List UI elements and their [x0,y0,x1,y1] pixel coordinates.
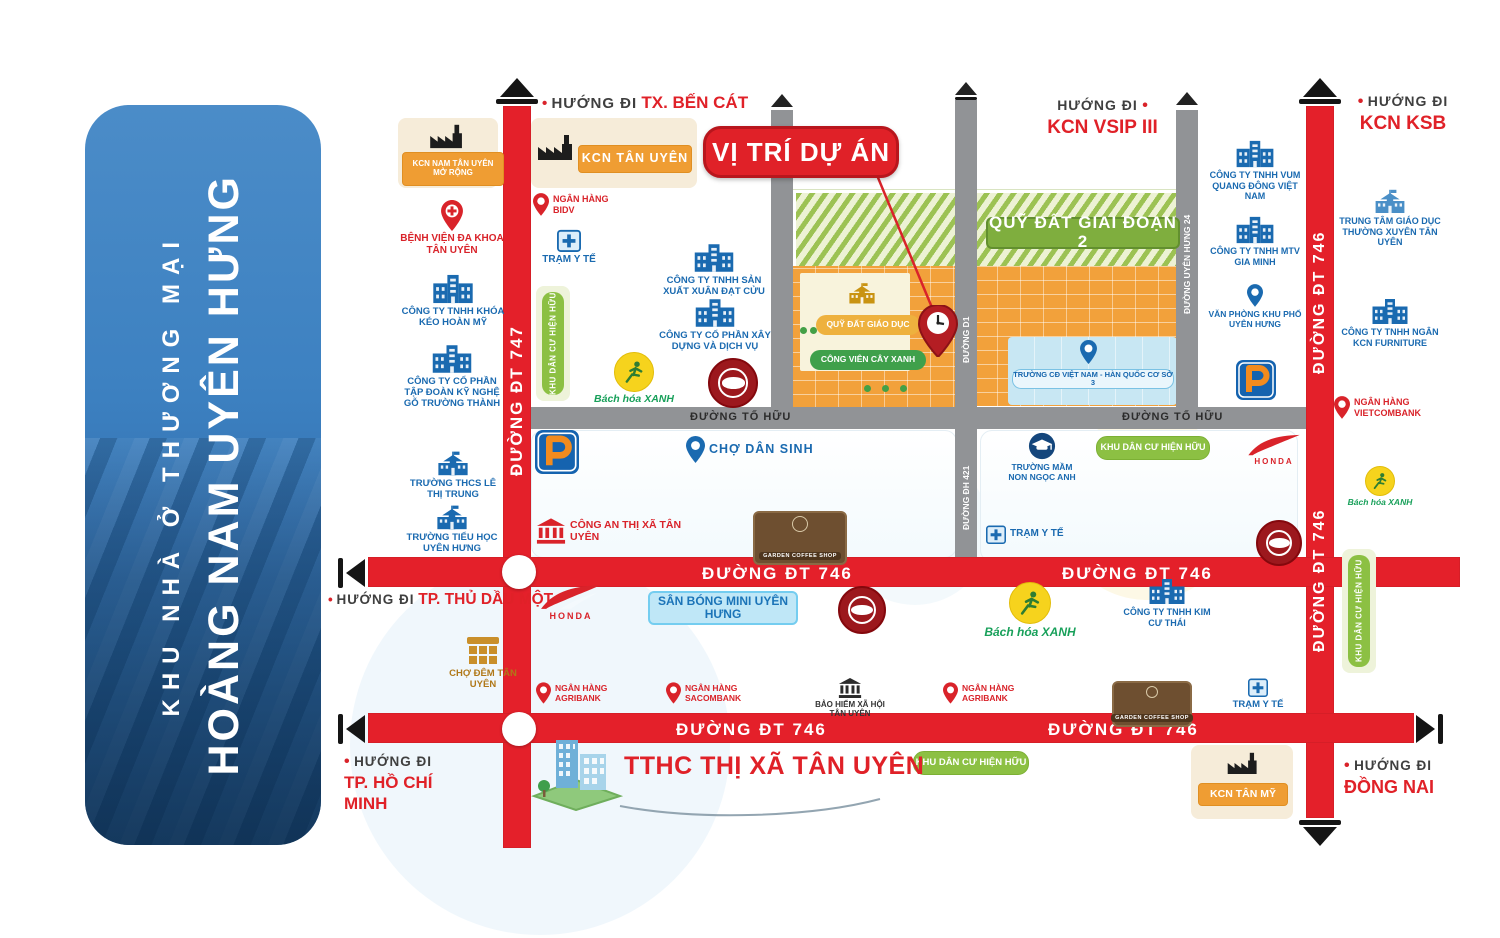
highlands-coffee-logo [838,586,886,634]
road-dt747-label: ĐƯỜNG ĐT 747 [503,318,531,483]
hospital-pin-icon [441,200,463,231]
phase2-badge: QUỸ ĐẤT GIAI ĐOẠN 2 [986,217,1180,249]
poi-kim-cu-thai: CÔNG TY TNHH KIM CƯ THÁI [1122,578,1212,628]
coffee-ornament-icon [1146,686,1158,698]
khu-dan-cu-badge-east: KHU DÂN CƯ HIỆN HỮU [1096,436,1210,460]
direction-ksb: • HƯỚNG ĐI KCN KSB [1344,92,1462,136]
poi-khoa-keo: CÔNG TY TNHH KHÓA KÉO HOÀN MỸ [397,274,509,328]
school-icon [434,504,470,530]
company-building-icon [1234,216,1276,244]
company-building-icon [430,344,474,374]
road-dh421-label: ĐƯỜNG ĐH 421 [955,448,977,548]
road-uyen-hung-24-label: ĐƯỜNG UYÊN HƯNG 24 [1176,192,1198,337]
poi-van-phong-khu-pho: VĂN PHÒNG KHU PHỐ UYÊN HƯNG [1208,284,1302,329]
junction-circle [502,555,536,589]
arrow-north-gray-west [769,94,795,107]
arrow-north-dt747 [494,78,540,104]
bush-icon [810,327,817,334]
direction-vsip3: HƯỚNG ĐI • KCN VSIP III [1030,96,1175,140]
road-dt746-east-label: ĐƯỜNG ĐT 746 [1306,222,1334,382]
poi-vum-quang-dong: CÔNG TY TNHH VUM QUANG ĐÔNG VIỆT NAM [1203,140,1307,202]
coffee-ornament-icon [792,516,808,532]
bush-icon [900,385,907,392]
company-building-icon [1147,578,1187,605]
bach-hoa-xanh-icon [1009,582,1051,624]
arrow-south-dt746 [1297,820,1343,846]
factory-icon [1226,750,1260,776]
bank-pin-icon [536,682,551,704]
college-pin-icon [1080,340,1097,364]
highlands-coffee-logo [1256,520,1302,566]
road-dt746-east [1306,106,1334,818]
road-dt746-label: ĐƯỜNG ĐT 746 [676,720,827,740]
khu-dan-cu-vertical-east: KHU DÂN CƯ HIỆN HỮU [1342,549,1376,673]
kcn-nam-tan-uyen-badge: KCN NAM TÂN UYÊN MỞ RỘNG [402,152,504,186]
tthc-label: TTHC THỊ XÃ TÂN UYÊN [624,752,924,781]
highlands-coffee-logo [708,358,758,408]
edu-land-badge: QUỸ ĐẤT GIÁO DỤC [816,315,920,335]
poi-tram-y-te-3: TRẠM Y TẾ [1226,677,1290,710]
bank-pin-icon [533,193,549,216]
medical-station-icon [557,228,581,252]
medical-station-icon [1248,677,1268,697]
college-badge: TRƯỜNG CĐ VIỆT NAM - HÀN QUỐC CƠ SỞ 3 [1012,369,1174,389]
poi-cho-dem: CHỢ ĐÊM TÂN UYÊN [442,636,524,690]
petrolimex-logo [1236,360,1276,400]
direction-ben-cat: • HƯỚNG ĐI TX. BẾN CÁT [542,92,748,114]
direction-ho-chi-minh: • HƯỚNG ĐI TP. HỒ CHÍ MINH [344,752,479,815]
poi-bidv: NGÂN HÀNG BIDV [533,193,623,216]
poi-xuan-dat-cuu: CÔNG TY TNHH SẢN XUẤT XUÂN ĐẠT CỬU [653,243,775,297]
arrow-north-d1 [952,82,980,100]
runner-icon [1017,590,1043,616]
bach-hoa-xanh-west: Bách hóa XANH [588,352,680,405]
san-bong-badge: SÂN BÓNG MINI UYÊN HƯNG [648,591,798,625]
bush-icon [800,327,807,334]
poi-cong-an: CÔNG AN THỊ XÃ TÂN UYÊN [536,518,686,544]
market-pin-icon [686,436,705,463]
bush-icon [882,385,889,392]
bach-hoa-xanh-center: Bách hóa XANH [972,582,1088,639]
honda-wing-icon [1247,434,1301,457]
poi-sacombank: NGÂN HÀNG SACOMBANK [666,682,758,704]
factory-icon [428,122,466,150]
poi-benh-vien: BỆNH VIỆN ĐA KHOA TÂN UYÊN [393,200,511,257]
arrow-west-dt746-south [338,714,365,744]
kcn-tan-my-badge: KCN TÂN MỸ [1198,783,1288,806]
company-building-icon [430,274,476,304]
poi-tram-y-te-1: TRẠM Y TẾ [535,228,603,266]
road-to-huu-label: ĐƯỜNG TỐ HỮU [690,411,791,423]
khu-dan-cu-vertical-west: KHU DÂN CƯ HIỆN HỮU [536,286,570,401]
factory-icon [536,132,576,162]
project-location-pin-icon [918,305,958,357]
company-building-icon [693,298,737,328]
poi-cho-dan-sinh: CHỢ DÂN SINH [686,436,814,463]
location-map: KHU NHÀ Ở THƯƠNG MẠI HOÀNG NAM UYÊN HƯNG… [0,0,1500,938]
garden-coffee-badge: GARDEN COFFEE SHOP [1112,681,1192,727]
arrow-west-dt746-north [338,558,365,588]
banner-subtitle: KHU NHÀ Ở THƯƠNG MẠI [158,233,186,717]
poi-ngan-kcn-furniture: CÔNG TY TNHH NGÂN KCN FURNITURE [1338,298,1442,348]
khu-dan-cu-badge-south: KHU DÂN CƯ HIỆN HỮU [913,751,1029,775]
poi-ttgdtx: TRUNG TÂM GIÁO DỤC THƯỜNG XUYÊN TÂN UYÊN [1338,188,1442,248]
kcn-tan-uyen-badge: KCN TÂN UYÊN [578,145,692,173]
poi-gia-minh: CÔNG TY TNHH MTV GIA MINH [1205,216,1305,267]
school-icon [435,450,471,476]
school-land-icon [848,281,876,305]
park-badge: CÔNG VIÊN CÂY XANH [810,350,926,370]
road-dt746-east-label: ĐƯỜNG ĐT 746 [1306,498,1334,663]
honda-logo-east: HONDA [1244,434,1304,466]
road-to-huu-label: ĐƯỜNG TỐ HỮU [1122,411,1223,423]
direction-thu-dau-mot: • HƯỚNG ĐI TP. THỦ DẦU MỘT [328,590,553,609]
bach-hoa-xanh-east: Bách hóa XANH [1334,466,1426,507]
arrow-east-dt746-south [1416,714,1443,744]
poi-mam-non-ngoc-anh: TRƯỜNG MẦM NON NGỌC ANH [1002,432,1082,482]
runner-icon [622,360,646,384]
poi-agribank-1: NGÂN HÀNG AGRIBANK [536,682,622,704]
poi-xay-dung-dich-vu: CÔNG TY CỔ PHẦN XÂY DỰNG VÀ DỊCH VỤ [658,298,772,352]
banner-title: HOÀNG NAM UYÊN HƯNG [200,174,249,776]
company-building-icon [1370,298,1410,325]
office-pin-icon [1247,284,1263,307]
night-market-icon [466,636,500,666]
project-location-callout: VỊ TRÍ DỰ ÁN [703,126,899,178]
bank-pin-icon [943,682,958,704]
poi-tram-y-te-2: TRẠM Y TẾ [986,524,1082,544]
direction-dong-nai: • HƯỚNG ĐI ĐỒNG NAI [1344,756,1459,799]
poi-thcs-le-thi-trung: TRƯỜNG THCS LÊ THỊ TRUNG [403,450,503,500]
road-d1-label: ĐƯỜNG D1 [955,298,977,382]
poi-tieu-hoc-uyen-hung: TRƯỜNG TIỂU HỌC UYÊN HƯNG [398,504,506,554]
police-building-icon [536,518,566,544]
poi-vietcombank: NGÂN HÀNG VIETCOMBANK [1334,396,1430,419]
arrow-north-uyen-hung-24 [1173,92,1201,105]
company-building-icon [1234,140,1276,168]
poi-go-truong-thanh: CÔNG TY CỔ PHẦN TẬP ĐOÀN KỸ NGHỆ GỖ TRƯỜ… [398,344,506,410]
kindergarten-icon [1028,432,1056,460]
garden-coffee-badge: GARDEN COFFEE SHOP [753,511,847,565]
bank-pin-icon [1334,396,1350,419]
poi-agribank-2: NGÂN HÀNG AGRIBANK [943,682,1029,704]
bach-hoa-xanh-icon [1365,466,1395,496]
petrolimex-logo [535,430,579,474]
company-building-icon [692,243,736,273]
school-icon [1374,188,1406,214]
road-dt746-label: ĐƯỜNG ĐT 746 [702,564,853,584]
poi-bhxh: BẢO HIỂM XÃ HỘI TÂN UYÊN [812,678,888,719]
project-banner: KHU NHÀ Ở THƯƠNG MẠI HOÀNG NAM UYÊN HƯNG [85,105,321,845]
medical-station-icon [986,524,1006,544]
bank-pin-icon [666,682,681,704]
runner-icon [1371,472,1389,490]
arrow-north-dt746 [1297,78,1343,104]
bush-icon [864,385,871,392]
tthc-buildings-illustration [526,726,626,811]
bach-hoa-xanh-icon [614,352,654,392]
government-building-icon [838,678,862,698]
